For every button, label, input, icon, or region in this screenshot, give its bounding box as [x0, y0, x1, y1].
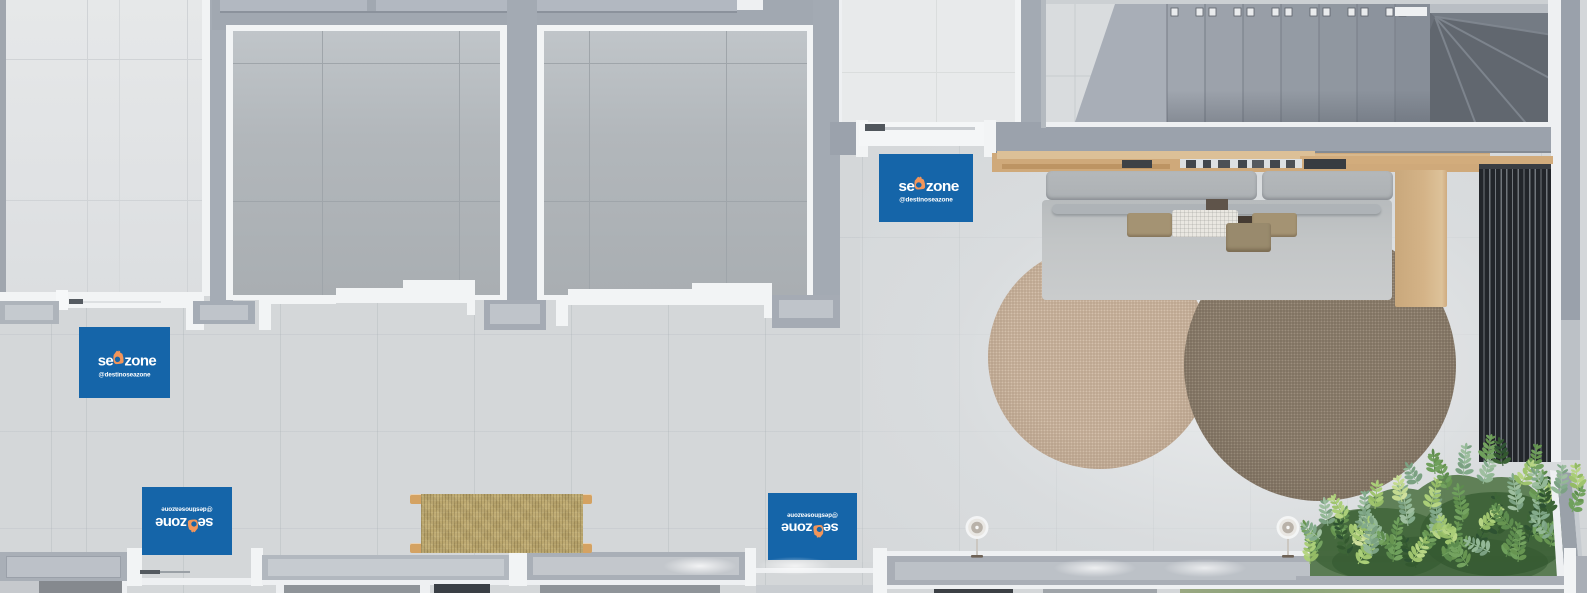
svg-text:se: se [198, 514, 214, 530]
svg-text:@destinoseazone: @destinoseazone [786, 511, 837, 517]
svg-text:@destinoseazone: @destinoseazone [161, 506, 213, 513]
svg-text:zone: zone [781, 520, 813, 536]
svg-text:se: se [98, 353, 114, 370]
svg-text:@destinoseazone: @destinoseazone [899, 197, 953, 204]
svg-text:zone: zone [155, 514, 187, 530]
svg-text:se: se [898, 178, 914, 194]
svg-text:zone: zone [124, 353, 156, 370]
svg-text:zone: zone [926, 178, 959, 194]
svg-text:se: se [823, 520, 839, 536]
svg-text:@destinoseazone: @destinoseazone [99, 372, 151, 379]
